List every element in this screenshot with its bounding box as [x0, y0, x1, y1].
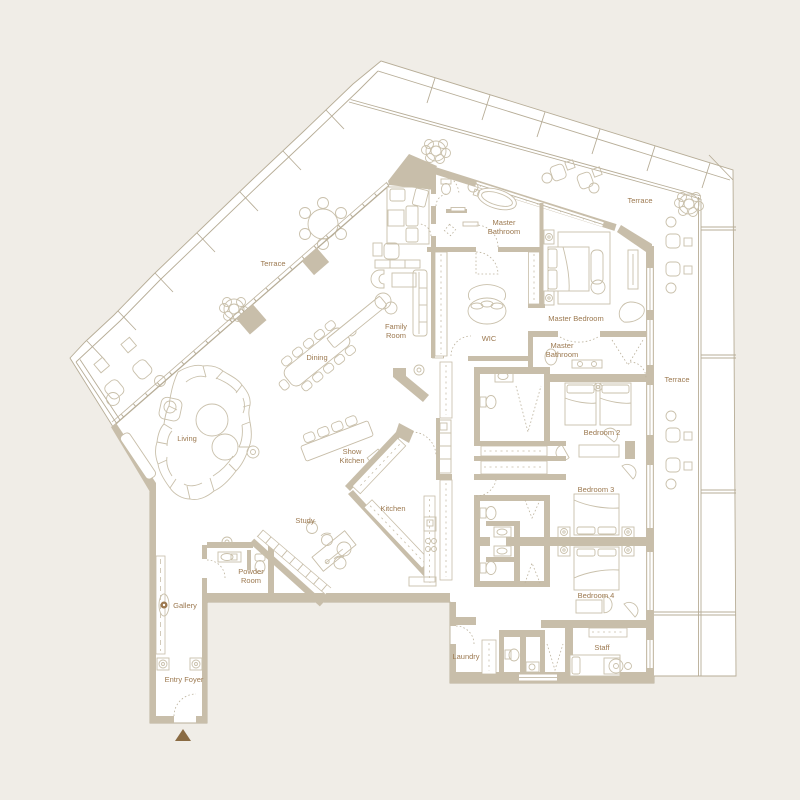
- svg-text:Kitchen: Kitchen: [380, 504, 405, 513]
- svg-text:Room: Room: [241, 576, 261, 585]
- svg-text:Family: Family: [385, 322, 407, 331]
- svg-text:Study: Study: [295, 516, 314, 525]
- svg-text:Powder: Powder: [238, 567, 264, 576]
- svg-text:Room: Room: [386, 331, 406, 340]
- svg-text:Kitchen: Kitchen: [339, 456, 364, 465]
- svg-text:Laundry: Laundry: [452, 652, 479, 661]
- svg-text:Terrace: Terrace: [627, 196, 652, 205]
- svg-text:Bedroom 2: Bedroom 2: [584, 428, 621, 437]
- svg-text:Bathroom: Bathroom: [546, 350, 579, 359]
- svg-text:Living: Living: [177, 434, 197, 443]
- svg-text:WIC: WIC: [482, 334, 497, 343]
- svg-text:Master: Master: [551, 341, 574, 350]
- svg-text:Entry Foyer: Entry Foyer: [165, 675, 204, 684]
- svg-text:Terrace: Terrace: [664, 375, 689, 384]
- svg-text:Bedroom 3: Bedroom 3: [578, 485, 615, 494]
- svg-text:Master: Master: [493, 218, 516, 227]
- svg-text:Dining: Dining: [306, 353, 327, 362]
- svg-text:Show: Show: [343, 447, 362, 456]
- svg-text:Bedroom 4: Bedroom 4: [578, 591, 615, 600]
- svg-text:Master Bedroom: Master Bedroom: [548, 314, 603, 323]
- svg-text:Bathroom: Bathroom: [488, 227, 521, 236]
- svg-text:Terrace: Terrace: [260, 259, 285, 268]
- svg-text:Gallery: Gallery: [173, 601, 197, 610]
- svg-text:Staff: Staff: [594, 643, 610, 652]
